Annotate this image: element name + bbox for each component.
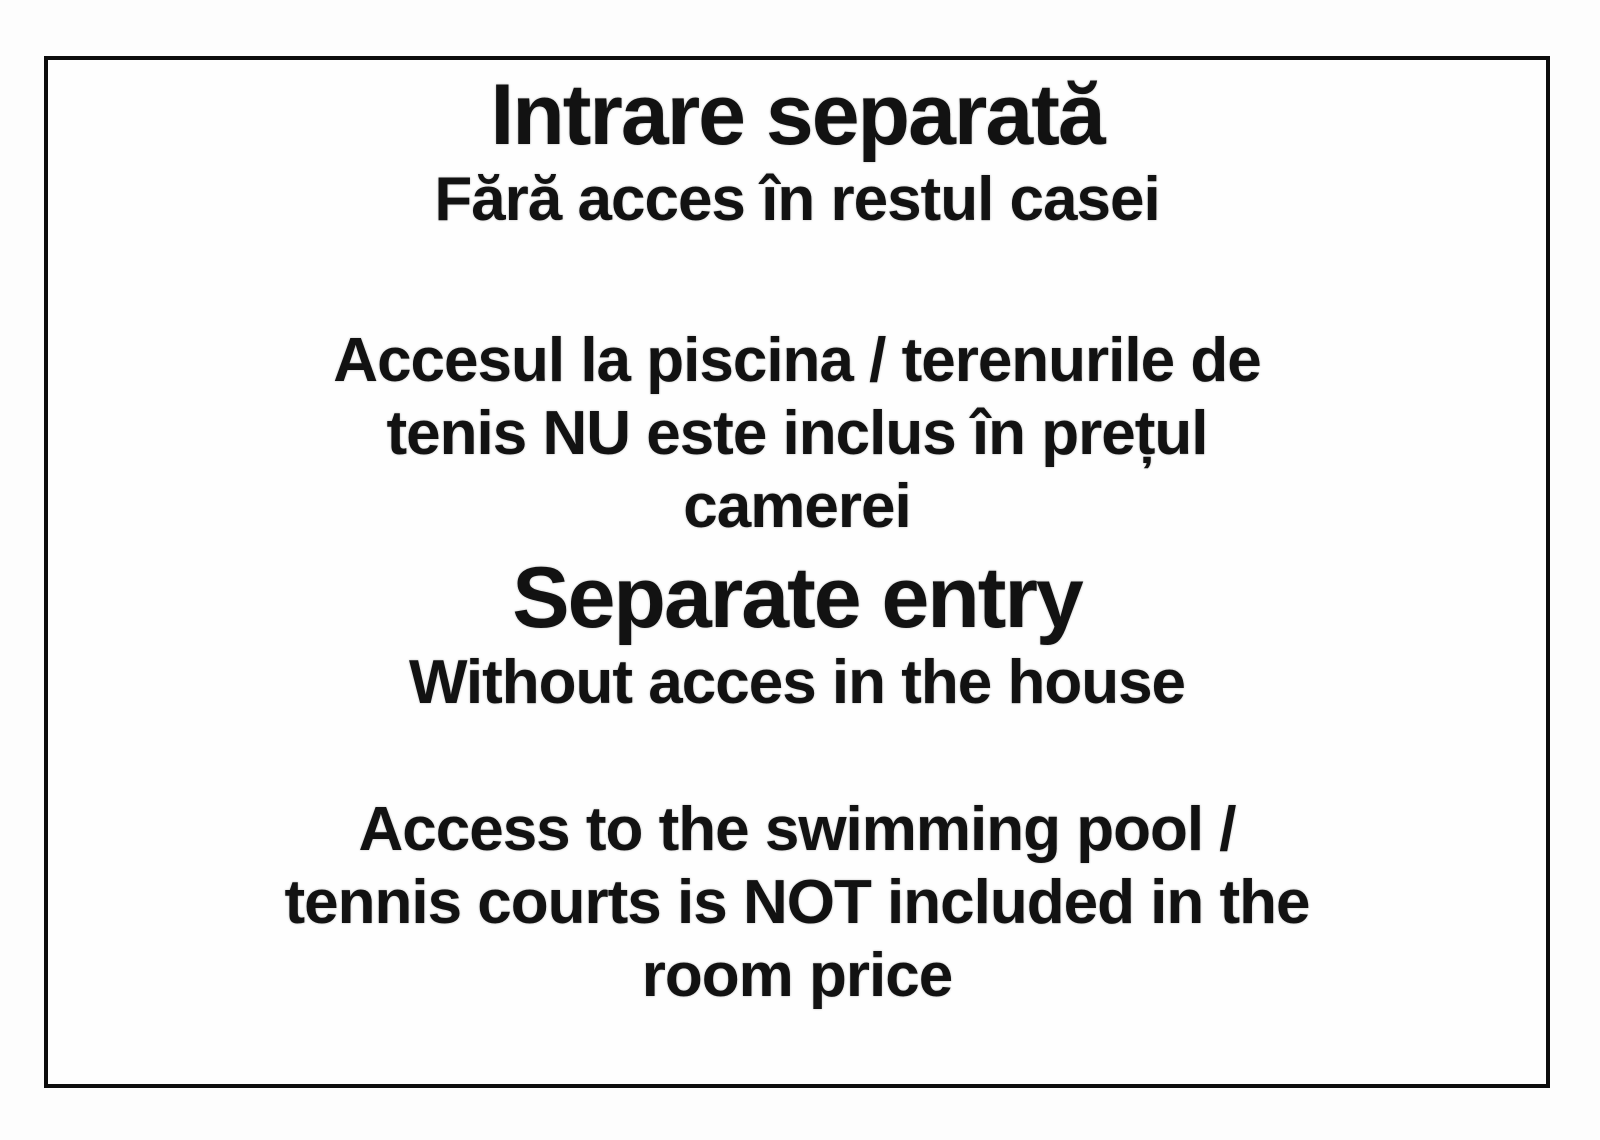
- english-body-line-2: tennis courts is NOT included in the: [48, 866, 1546, 939]
- english-body: Access to the swimming pool / tennis cou…: [48, 793, 1546, 1012]
- romanian-body-line-1: Accesul la piscina / terenurile de: [48, 324, 1546, 397]
- romanian-body: Accesul la piscina / terenurile de tenis…: [48, 324, 1546, 543]
- romanian-subtitle: Fără acces în restul casei: [48, 163, 1546, 236]
- romanian-body-line-2: tenis NU este inclus în prețul: [48, 397, 1546, 470]
- notice-frame: Intrare separată Fără acces în restul ca…: [44, 56, 1550, 1088]
- english-body-line-1: Access to the swimming pool /: [48, 793, 1546, 866]
- english-subtitle: Without acces in the house: [48, 646, 1546, 719]
- notice-page: Intrare separată Fără acces în restul ca…: [0, 0, 1600, 1140]
- english-title: Separate entry: [48, 551, 1546, 646]
- english-body-line-3: room price: [48, 939, 1546, 1012]
- romanian-body-line-3: camerei: [48, 470, 1546, 543]
- romanian-title: Intrare separată: [48, 68, 1546, 163]
